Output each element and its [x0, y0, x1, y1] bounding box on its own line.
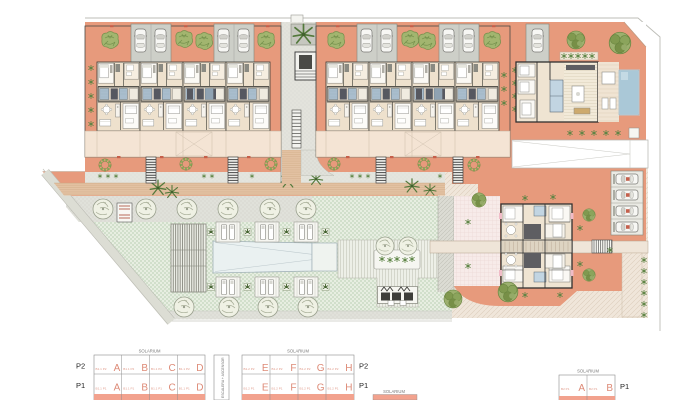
- svg-text:E: E: [262, 363, 269, 374]
- svg-text:B1.1 P1: B1.1 P1: [151, 387, 162, 391]
- svg-text:P1: P1: [76, 381, 85, 390]
- svg-text:B1.1 P2: B1.1 P2: [151, 367, 162, 371]
- svg-text:B1.1 P2: B1.1 P2: [179, 367, 190, 371]
- svg-text:P2: P2: [359, 362, 368, 371]
- svg-text:SOLARIUM: SOLARIUM: [139, 349, 161, 354]
- svg-text:B2 P1: B2 P1: [589, 387, 598, 391]
- svg-text:B: B: [141, 363, 148, 374]
- svg-text:B1.1 P1: B1.1 P1: [96, 387, 107, 391]
- svg-text:G: G: [317, 363, 325, 374]
- svg-text:A: A: [114, 363, 121, 374]
- svg-text:A: A: [114, 383, 121, 394]
- svg-text:B1.2 P1: B1.2 P1: [328, 387, 339, 391]
- svg-text:B1.1 P2: B1.1 P2: [96, 367, 107, 371]
- svg-text:B1.1 P1: B1.1 P1: [179, 387, 190, 391]
- svg-text:B1.2 P1: B1.2 P1: [244, 387, 255, 391]
- svg-text:C: C: [169, 383, 176, 394]
- svg-text:H: H: [345, 363, 352, 374]
- svg-text:B1.2 P1: B1.2 P1: [300, 387, 311, 391]
- svg-text:B2 P1: B2 P1: [561, 387, 570, 391]
- svg-text:F: F: [290, 363, 296, 374]
- svg-text:B1.1 P2: B1.1 P2: [123, 367, 134, 371]
- svg-text:E: E: [262, 383, 269, 394]
- svg-text:B: B: [141, 383, 148, 394]
- svg-text:F: F: [290, 383, 296, 394]
- svg-text:SOLARIUM: SOLARIUM: [287, 349, 309, 354]
- svg-text:ESCALERA + ASCENSOR: ESCALERA + ASCENSOR: [221, 357, 225, 398]
- svg-text:B1.2 P2: B1.2 P2: [300, 367, 311, 371]
- svg-text:SOLARIUM: SOLARIUM: [577, 369, 599, 374]
- svg-text:D: D: [196, 363, 203, 374]
- svg-text:B1.2 P2: B1.2 P2: [328, 367, 339, 371]
- svg-text:A: A: [578, 383, 585, 394]
- svg-text:C: C: [169, 363, 176, 374]
- svg-text:B1.2 P2: B1.2 P2: [272, 367, 283, 371]
- svg-text:P1: P1: [359, 381, 368, 390]
- svg-text:D: D: [196, 383, 203, 394]
- svg-text:SOLARIUM: SOLARIUM: [383, 389, 405, 394]
- svg-text:P2: P2: [76, 362, 85, 371]
- svg-text:G: G: [317, 383, 325, 394]
- svg-text:B: B: [606, 383, 613, 394]
- svg-text:H: H: [345, 383, 352, 394]
- svg-text:P1: P1: [620, 382, 629, 391]
- svg-text:B1.1 P1: B1.1 P1: [123, 387, 134, 391]
- svg-text:B1.2 P1: B1.2 P1: [272, 387, 283, 391]
- svg-text:B1.2 P2: B1.2 P2: [244, 367, 255, 371]
